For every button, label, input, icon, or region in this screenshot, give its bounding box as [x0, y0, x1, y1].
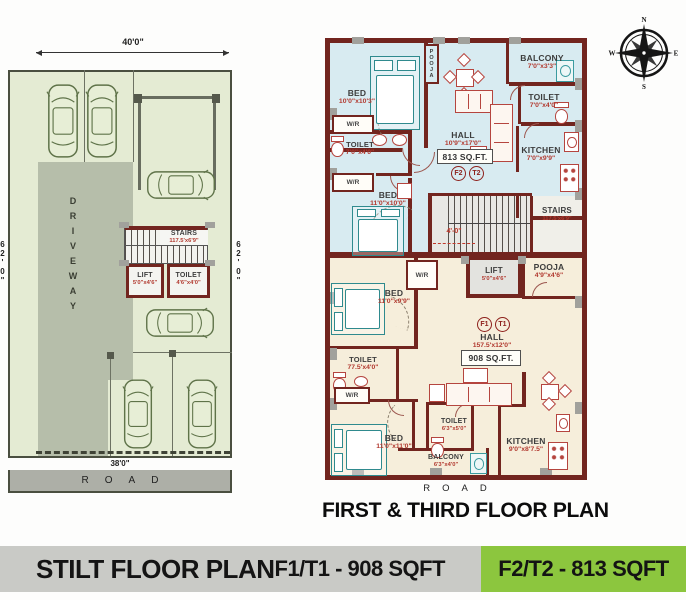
- wr-box: W/R: [334, 387, 370, 404]
- room-name: STAIRS: [160, 230, 208, 238]
- room-dim: 7'0"x4'0": [338, 149, 382, 157]
- room-label-toilet-low-left: TOILET 77.5'x4'0": [340, 355, 386, 372]
- room-dim: 117.5'x6'9": [160, 238, 208, 245]
- stilt-top-dimension: 40'0": [36, 37, 230, 47]
- wall-column-block: [119, 222, 129, 228]
- room-label-kitchen-top: KITCHEN 7'0"x9'9": [516, 145, 566, 163]
- footer-bar: STILT FLOOR PLAN F1/T1 - 908 SQFT F2/T2 …: [0, 546, 686, 592]
- room-name: BALCONY: [420, 454, 472, 462]
- wall-column-block: [205, 260, 215, 266]
- room-dim: 117.5'x6'9": [534, 216, 580, 223]
- wash-basin-icon: [392, 134, 407, 146]
- room-dim: 7'0"x9'9": [516, 155, 566, 163]
- room-name: LIFT: [466, 266, 522, 276]
- parking-bay-line: [172, 352, 173, 456]
- stilt-road-label: ROAD: [8, 475, 232, 486]
- room-name: TOILET: [167, 272, 210, 280]
- room-label-pooja-mid: POOJA 4'9"x4'6": [526, 262, 572, 280]
- room-dim: 6'3"x5'0": [434, 426, 474, 433]
- room-name: BED: [334, 88, 380, 98]
- driveway-area: [38, 162, 133, 380]
- room-name: KITCHEN: [500, 436, 552, 446]
- car-icon: [145, 305, 215, 341]
- wr-box: W/R: [332, 115, 374, 134]
- dining-set-icon: [530, 374, 568, 408]
- room-dim: 11'0"x9'9": [370, 298, 418, 306]
- wall: [522, 372, 526, 406]
- wall-column-block: [575, 402, 582, 414]
- room-label-balcony-bottom: BALCONY 6'3"x4'0": [420, 454, 472, 469]
- car-icon: [46, 78, 80, 164]
- stair-front-dimension: 4'-0": [436, 228, 472, 235]
- room-label-kitchen-bottom: KITCHEN 9'0"x8'7.5": [500, 436, 552, 454]
- stilt-right-dimension: 62'0": [234, 240, 243, 285]
- stove-icon: [560, 164, 579, 192]
- room-label-bed-top-left: BED 10'0"x10'3": [334, 88, 380, 106]
- stair-front-dim-line: [433, 243, 475, 244]
- washing-machine-icon: [470, 453, 487, 474]
- tv-unit-icon: [429, 384, 445, 402]
- parking-bay-line: [110, 355, 111, 456]
- car-icon: [85, 78, 119, 164]
- bay-post: [107, 352, 114, 359]
- room-name: TOILET: [338, 140, 382, 149]
- room-dim: 5'0"x4'6": [126, 280, 164, 287]
- room-label-toilet-bottom-mid: TOILET 6'3"x5'0": [434, 418, 474, 433]
- room-name: TOILET: [520, 92, 568, 102]
- wall: [396, 349, 399, 399]
- wall-column-block: [575, 296, 582, 308]
- room-label-hall-top: HALL 10'9"x17'0": [432, 130, 494, 148]
- stairs-label-room: [532, 196, 582, 252]
- garage-post: [212, 94, 220, 103]
- floor-plan-sheet: 40'0" DRIVEWAY STAIRS 117.5'x6'9" LIFT 5…: [0, 0, 686, 600]
- wash-basin-icon: [354, 376, 368, 387]
- room-name: BED: [370, 288, 418, 298]
- unit-badge-t2: T2: [469, 166, 484, 181]
- wr-box: W/R: [406, 260, 438, 290]
- room-name: BED: [364, 190, 412, 200]
- room-name: KITCHEN: [516, 145, 566, 155]
- wall: [530, 196, 533, 252]
- stilt-top-dimension-line: [36, 52, 229, 53]
- bay-post: [169, 350, 176, 357]
- room-dim: 7'0"x4'0": [520, 102, 568, 110]
- unit-badge-t1: T1: [495, 317, 510, 332]
- room-dim: 11'0"x11'0": [370, 443, 418, 451]
- wall: [506, 43, 509, 84]
- wall-column-block: [330, 348, 337, 360]
- room-label-bed-low-left: BED 11'0"x9'9": [370, 288, 418, 306]
- wall-column-block: [205, 222, 215, 228]
- wall: [330, 346, 418, 349]
- room-name: STAIRS: [534, 206, 580, 216]
- room-label-bed-mid-left: BED 11'0"x10'0": [364, 190, 412, 208]
- sofa-icon: [455, 90, 493, 113]
- room-dim: 10'0"x10'3": [334, 98, 380, 106]
- garage-post: [134, 94, 142, 103]
- unit-badge-f1: F1: [477, 317, 492, 332]
- room-dim: 77.5'x4'0": [340, 364, 386, 372]
- wall: [426, 402, 429, 448]
- wall-column-block: [575, 78, 582, 90]
- unit-badge-f2: F2: [451, 166, 466, 181]
- stilt-bottom-dimension: 38'0": [8, 459, 232, 468]
- unit-f2-footer-label: F2/T2 - 813 SQFT: [498, 556, 669, 582]
- wall-column-block: [119, 260, 129, 266]
- wall-column-block: [433, 37, 445, 44]
- car-icon: [122, 376, 154, 452]
- unit-f1-footer-label: F1/T1 - 908 SQFT: [275, 556, 446, 582]
- wall-column-block: [461, 256, 469, 264]
- room-name: POOJA: [429, 49, 435, 79]
- stilt-left-dimension: 62'0": [0, 240, 7, 285]
- room-dim: 6'3"x4'0": [420, 462, 472, 469]
- room-label-balcony-top: BALCONY 7'0"x3'3": [514, 53, 570, 71]
- room-name: BED: [370, 433, 418, 443]
- pooja-top-room: POOJA: [424, 44, 439, 84]
- room-name: TOILET: [434, 418, 474, 426]
- room-name: POOJA: [526, 262, 572, 272]
- room-label-hall-bottom: HALL 157.5'x12'0": [458, 332, 526, 350]
- room-label-toilet-top-right: TOILET 7'0"x4'0": [520, 92, 568, 110]
- room-label-bed-bottom-left: BED 11'0"x11'0": [370, 433, 418, 451]
- compass-west-label: W: [609, 50, 616, 58]
- compass-south-label: S: [642, 83, 646, 91]
- bed-icon: [352, 206, 404, 256]
- room-name: HALL: [458, 332, 526, 342]
- unit-f2-area-box: 813 SQ.FT.: [437, 149, 493, 164]
- stilt-plan-title: STILT FLOOR PLAN: [36, 554, 275, 585]
- room-name: LIFT: [126, 272, 164, 280]
- wall: [428, 196, 432, 252]
- parking-bay-line: [133, 352, 232, 353]
- wall: [522, 296, 582, 299]
- footer-gray-section: STILT FLOOR PLAN F1/T1 - 908 SQFT: [0, 546, 481, 592]
- room-name: BALCONY: [514, 53, 570, 63]
- coffee-table-icon: [463, 368, 488, 383]
- room-dim: 10'9"x17'0": [432, 140, 494, 148]
- room-dim: 11'0"x10'0": [364, 200, 412, 208]
- stilt-lift-label: LIFT 5'0"x4'6": [126, 272, 164, 287]
- kitchen-sink-icon: [556, 414, 570, 432]
- room-dim: 7'0"x3'3": [514, 63, 570, 71]
- room-dim: 4'9"x4'6": [526, 272, 572, 280]
- stairs-mid-line: [448, 223, 530, 224]
- driveway-area-lower: [38, 380, 108, 456]
- footer-green-section: F2/T2 - 813 SQFT: [481, 546, 686, 592]
- wall-column-block: [352, 37, 364, 44]
- wall-column-block: [518, 256, 526, 264]
- lift-label: LIFT 5'0"x4'6": [466, 266, 522, 283]
- room-name: HALL: [432, 130, 494, 140]
- parking-bay-line: [133, 70, 134, 162]
- floor-road-label: ROAD: [395, 483, 515, 494]
- wall-column-block: [458, 37, 470, 44]
- room-dim: 4'6"x4'0": [167, 280, 210, 287]
- unit-f1-area-box: 908 SQ.FT.: [461, 350, 521, 366]
- stairs-label: STAIRS 117.5'x6'9": [534, 206, 580, 223]
- room-label-toilet-mid-left: TOILET 7'0"x4'0": [338, 140, 382, 157]
- driveway-label: DRIVEWAY: [68, 196, 78, 361]
- floor-plan-title: FIRST & THIRD FLOOR PLAN: [322, 499, 574, 523]
- room-name: TOILET: [340, 355, 386, 364]
- room-dim: 9'0"x8'7.5": [500, 446, 552, 454]
- car-icon: [186, 376, 218, 452]
- wall-column-block: [509, 37, 521, 44]
- sofa-icon: [446, 383, 512, 406]
- car-icon: [146, 167, 216, 203]
- compass-east-label: E: [674, 50, 679, 58]
- compass-icon: N E S W: [608, 14, 680, 92]
- stilt-stairs-label: STAIRS 117.5'x6'9": [160, 230, 208, 245]
- room-dim: 5'0"x4'6": [466, 276, 522, 283]
- kitchen-sink-icon: [564, 132, 579, 152]
- stilt-toilet-label: TOILET 4'6"x4'0": [167, 272, 210, 287]
- compass-north-label: N: [641, 16, 646, 24]
- wall-column-block: [575, 120, 582, 132]
